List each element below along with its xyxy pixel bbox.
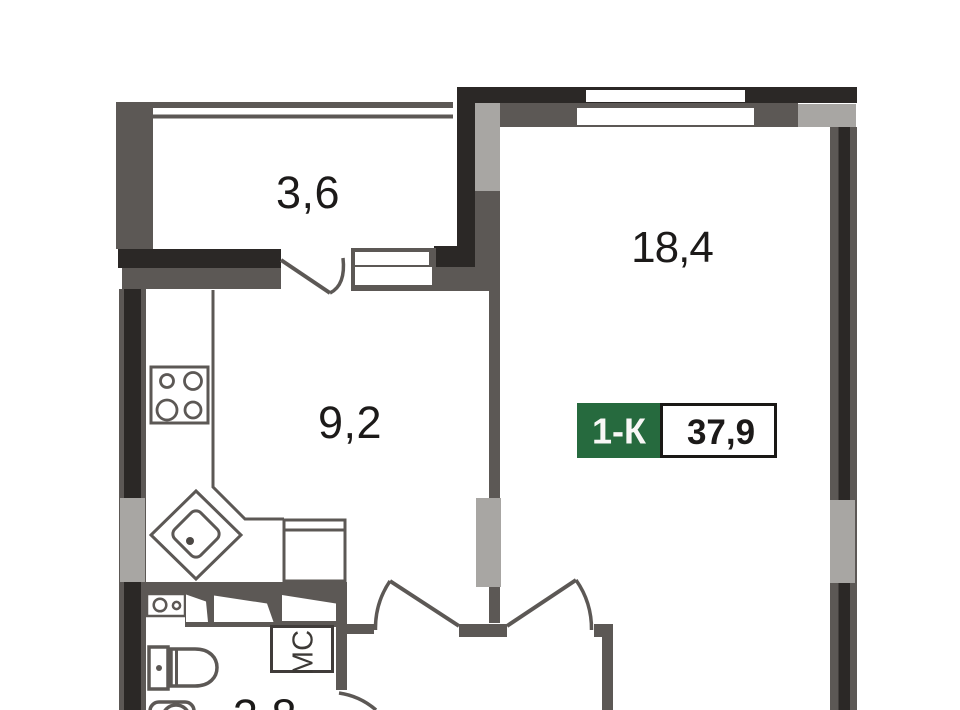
svg-text:18,4: 18,4 (631, 223, 713, 272)
svg-text:1-К: 1-К (592, 411, 647, 452)
svg-text:МС: МС (288, 630, 320, 675)
svg-text:37,9: 37,9 (687, 413, 755, 452)
svg-text:9,2: 9,2 (318, 397, 382, 448)
svg-text:3,6: 3,6 (276, 167, 340, 218)
svg-text:3,8: 3,8 (233, 690, 297, 710)
